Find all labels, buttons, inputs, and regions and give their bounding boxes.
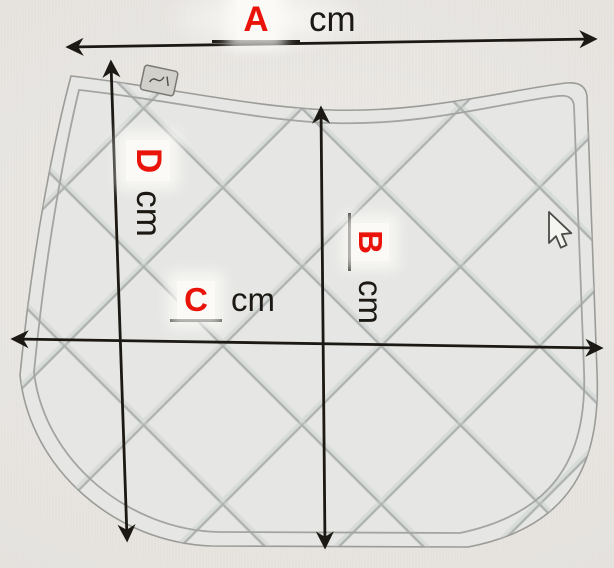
label-c-unit: cm bbox=[231, 282, 275, 318]
label-c: C cm bbox=[170, 281, 275, 322]
label-a-unit: cm bbox=[309, 1, 356, 39]
saddle-pad-photo bbox=[0, 0, 614, 568]
label-a: A cm bbox=[212, 0, 356, 43]
label-a-letter: A bbox=[236, 0, 275, 40]
measurement-worksheet: A cm D cm B cm C cm bbox=[0, 0, 614, 568]
label-d-unit: cm bbox=[129, 190, 167, 237]
label-c-letter: C bbox=[177, 281, 215, 319]
label-d-letter: D bbox=[126, 140, 170, 181]
label-b-unit: cm bbox=[352, 280, 388, 324]
label-d: D cm bbox=[126, 140, 170, 237]
label-b-letter: B bbox=[351, 223, 389, 261]
answer-blank-b: B bbox=[348, 213, 389, 271]
answer-blank-c: C bbox=[170, 281, 222, 322]
answer-blank-a: A bbox=[212, 0, 300, 43]
label-b: B cm bbox=[348, 213, 389, 324]
pad-quilting bbox=[20, 76, 597, 547]
saddle-pad bbox=[20, 65, 597, 547]
